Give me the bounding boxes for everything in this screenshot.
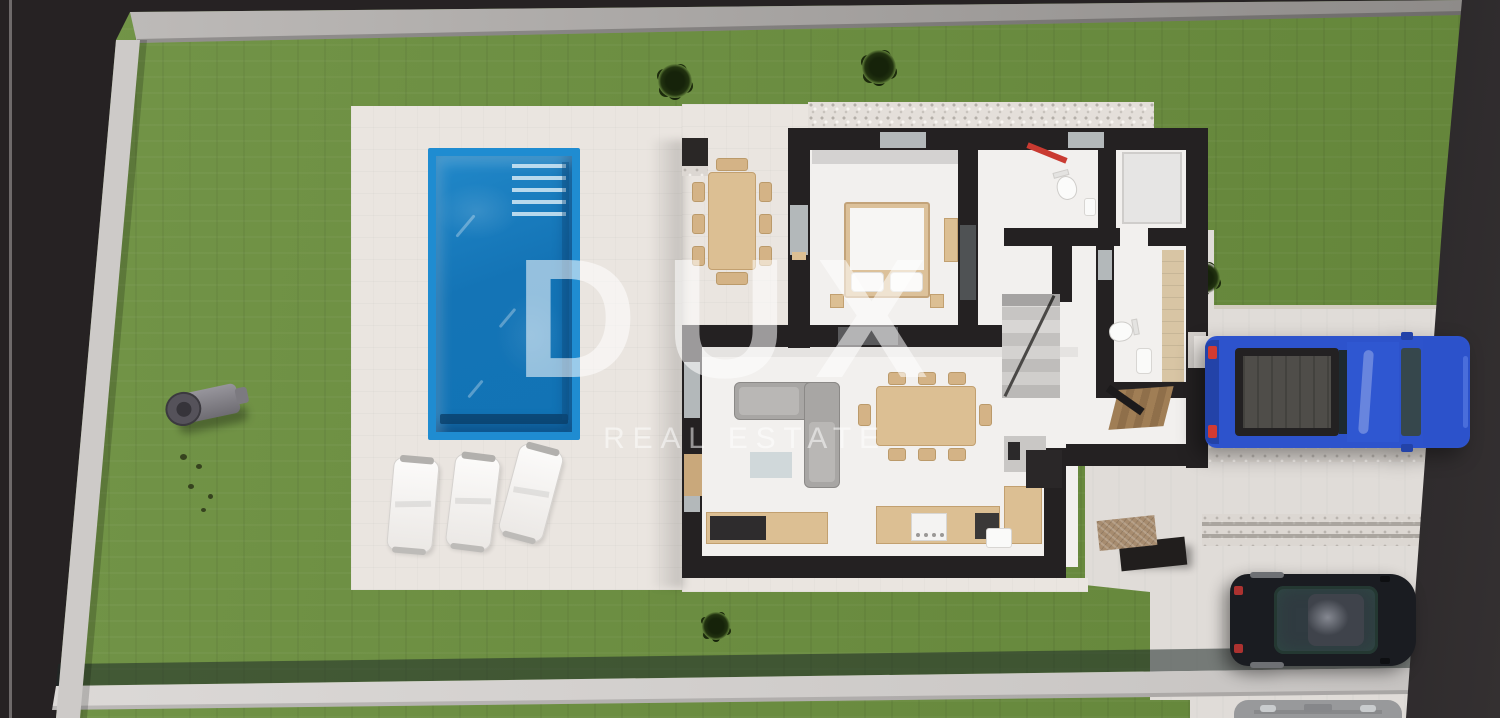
dark-car [1230,574,1416,666]
car-trim [1250,662,1284,668]
gray-car-headlight [1260,705,1276,712]
car-mirror [1380,658,1390,664]
blue-pickup-truck [1205,336,1470,448]
left-edge-line [9,0,12,718]
truck-taillight [1208,346,1217,359]
truck-windshield [1401,348,1421,436]
truck-mirror [1401,444,1413,452]
car-trim [1250,572,1284,578]
roof-sheen [1358,350,1374,434]
truck-taillight [1208,425,1217,438]
truck-cab-roof [1347,342,1399,442]
truck-rear-window [1339,350,1347,434]
site-plan-render: DUX REAL ESTATE [0,0,1500,718]
gray-car-headlight [1360,705,1376,712]
car-roof [1308,594,1364,646]
gray-car-partial [1234,700,1402,718]
car-taillight [1234,644,1243,653]
truck-bed-floor [1243,356,1331,428]
watermark-brand: DUX [505,234,965,404]
truck-front-edge [1463,356,1468,428]
car-taillight [1234,586,1243,595]
watermark-tagline: REAL ESTATE [572,424,918,454]
car-mirror [1380,576,1390,582]
gray-car-grille [1304,704,1332,712]
truck-mirror [1401,332,1413,340]
